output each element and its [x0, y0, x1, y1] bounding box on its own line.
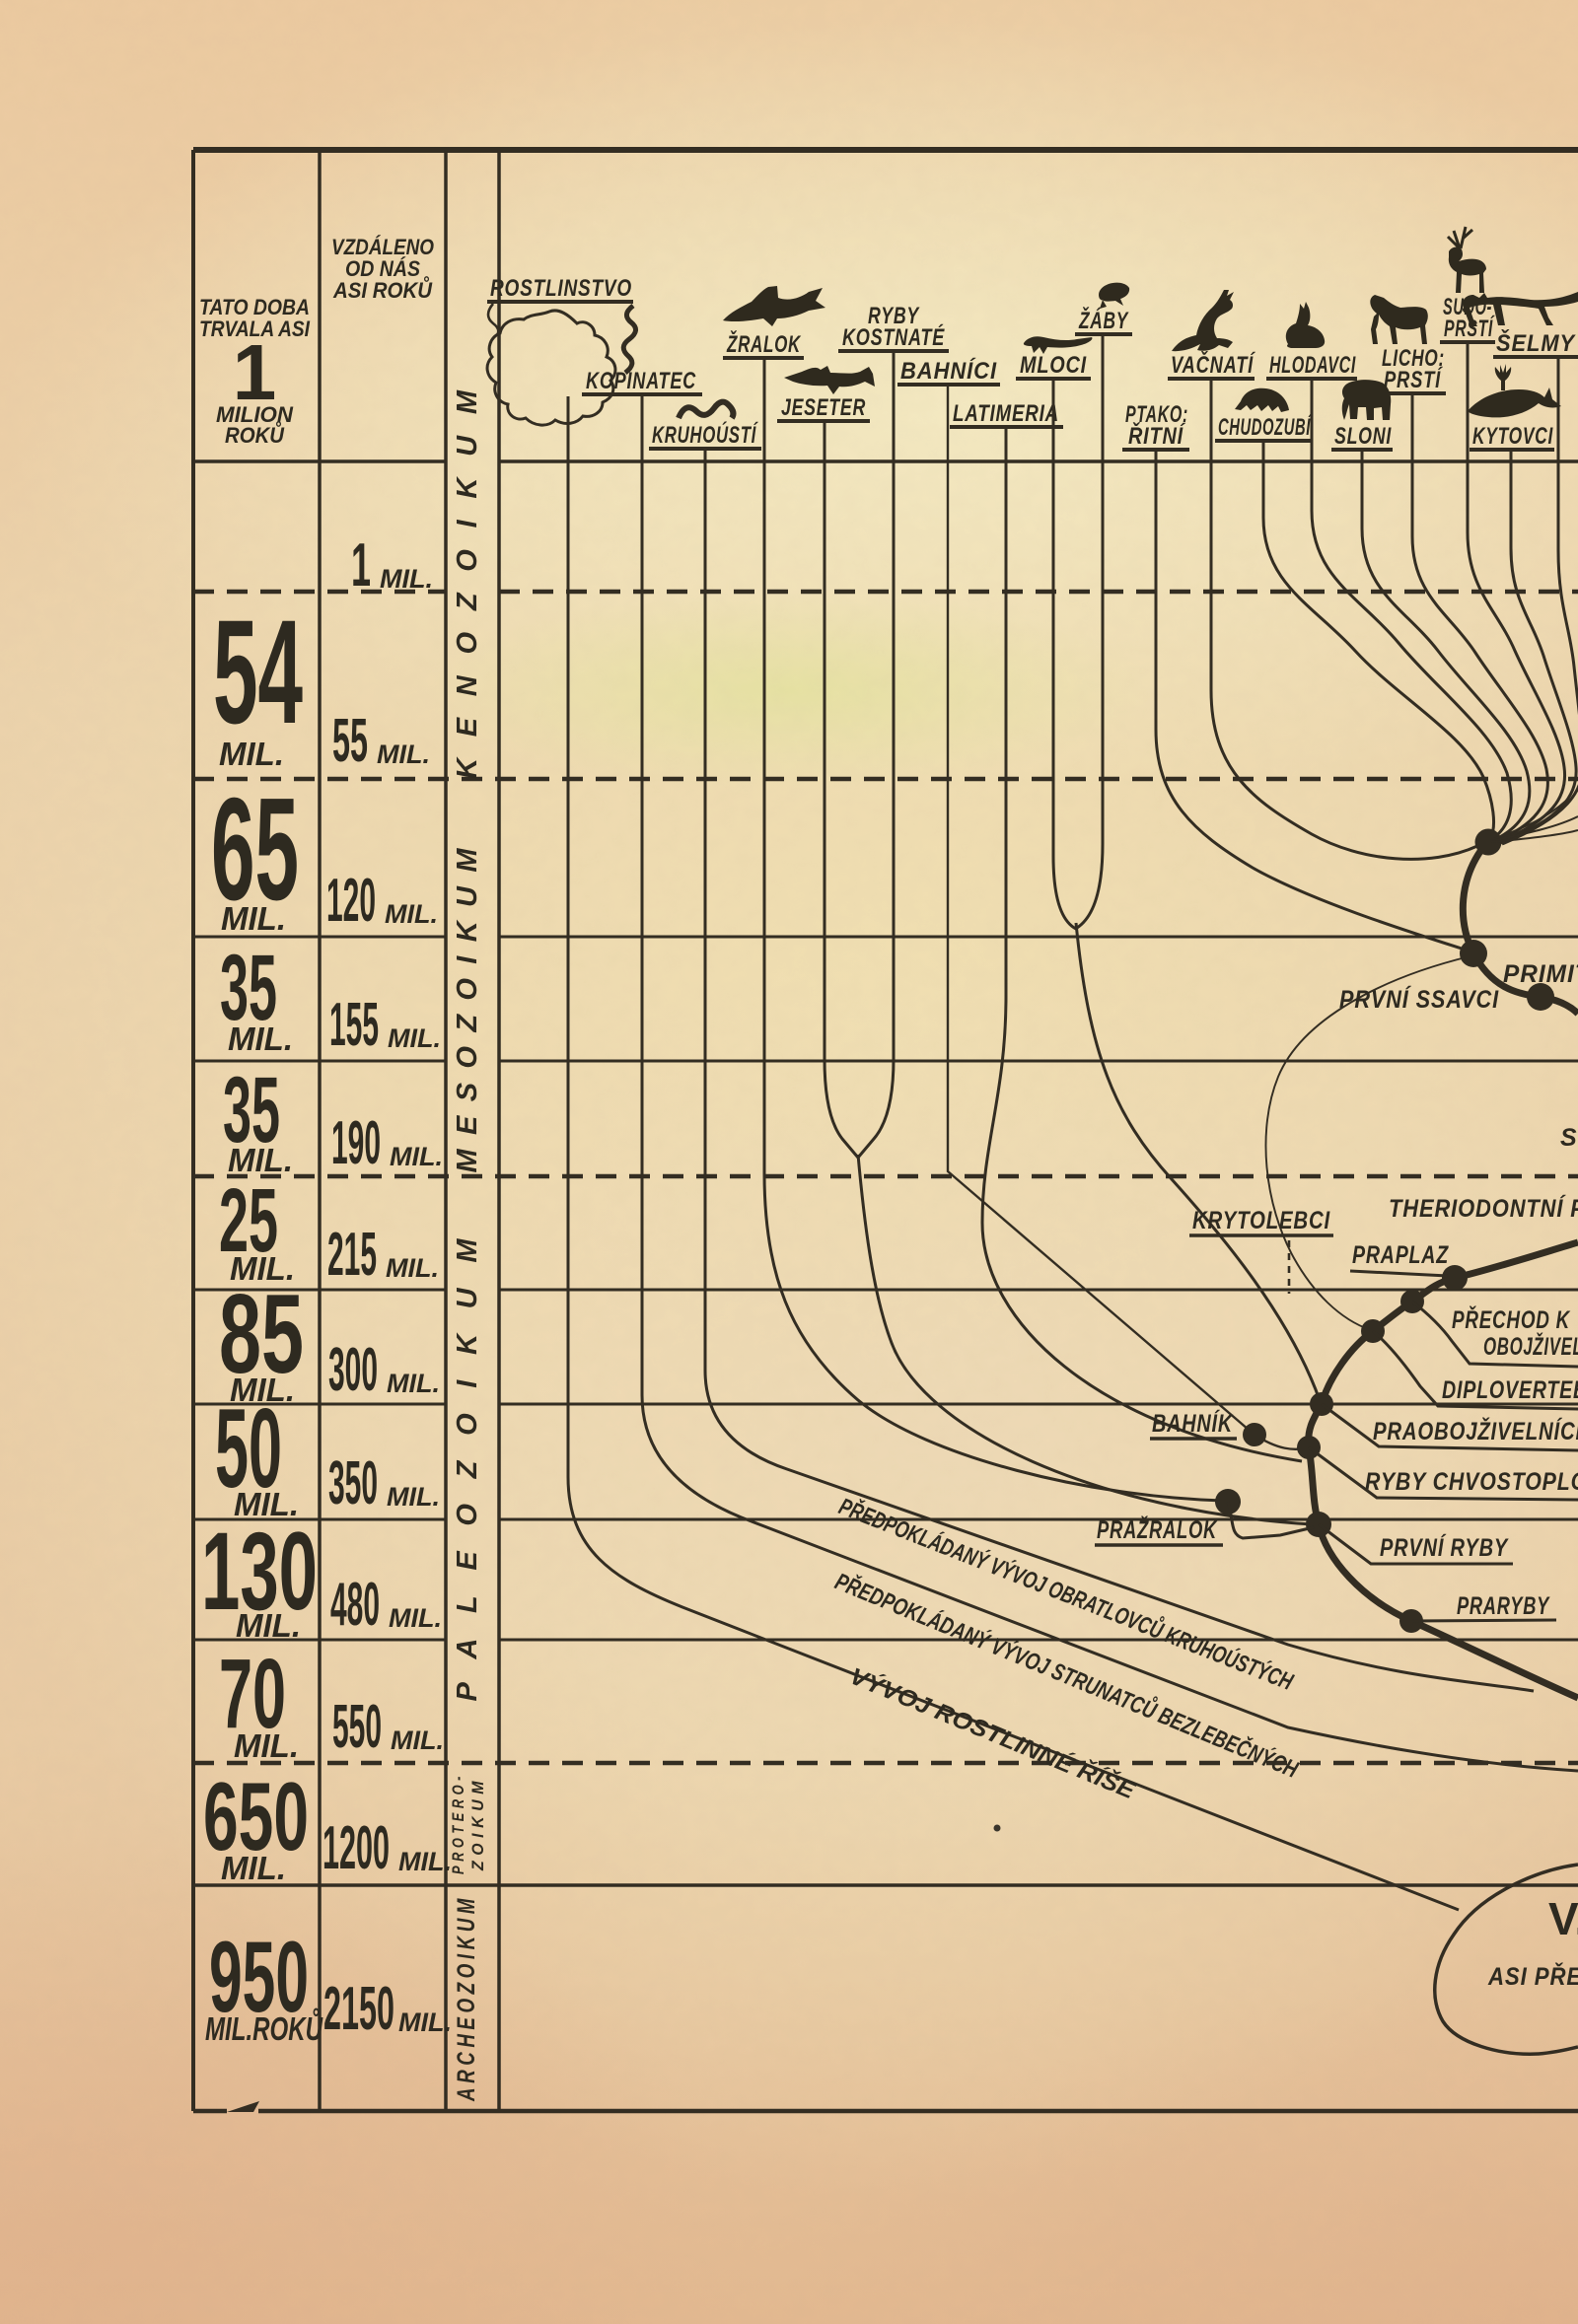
svg-text:CHUDOZUBÍ: CHUDOZUBÍ [1218, 413, 1313, 441]
svg-text:MIL.: MIL. [228, 1021, 293, 1057]
svg-text:VAČNATÍ: VAČNATÍ [1171, 351, 1256, 379]
svg-text:54: 54 [213, 589, 303, 754]
svg-text:155: 155 [329, 991, 379, 1059]
svg-text:PRAOBOJŽIVELNÍCÍ: PRAOBOJŽIVELNÍCÍ [1373, 1416, 1578, 1445]
svg-text:MIL.: MIL. [234, 1727, 299, 1764]
svg-text:MIL.: MIL. [221, 900, 286, 937]
svg-text:ASI PŘED: ASI PŘED [1487, 1961, 1578, 1991]
svg-text:HLODAVCI: HLODAVCI [1269, 352, 1356, 379]
svg-text:300: 300 [328, 1336, 378, 1404]
svg-text:DIPLOVERTEBRON: DIPLOVERTEBRON [1442, 1376, 1578, 1404]
svg-text:KOPINATEC: KOPINATEC [586, 368, 696, 394]
svg-text:PRSTÍ: PRSTÍ [1384, 366, 1444, 393]
svg-text:MIL.: MIL. [380, 564, 433, 594]
svg-text:OBOJŽIVELNÍKŮM: OBOJŽIVELNÍKŮM [1483, 1329, 1578, 1361]
svg-text:KRUHOÚSTÍ: KRUHOÚSTÍ [652, 421, 758, 449]
svg-text:PRAŽRALOK: PRAŽRALOK [1097, 1514, 1218, 1544]
svg-text:PRVNÍ RYBY: PRVNÍ RYBY [1380, 1533, 1509, 1562]
svg-text:350: 350 [328, 1449, 378, 1517]
svg-text:BAHNÍCI: BAHNÍCI [900, 357, 997, 385]
svg-text:S: S [1560, 1124, 1578, 1152]
svg-text:MIL.: MIL. [398, 2007, 452, 2037]
svg-text:ROKŮ: ROKŮ [225, 420, 285, 448]
svg-text:MIL.: MIL. [219, 736, 284, 772]
svg-text:RYBY CHVOSTOPLOUTVÍ: RYBY CHVOSTOPLOUTVÍ [1365, 1467, 1578, 1496]
svg-text:ZOIKUM: ZOIKUM [468, 1776, 487, 1871]
svg-text:480: 480 [330, 1571, 380, 1639]
svg-text:ARCHEOZOIKUM: ARCHEOZOIKUM [453, 1894, 480, 2102]
svg-text:550: 550 [332, 1693, 382, 1761]
svg-text:MIL.: MIL. [391, 1725, 444, 1755]
svg-text:190: 190 [331, 1109, 381, 1177]
svg-text:MIL.: MIL. [388, 1023, 441, 1053]
svg-text:KRYTOLEBCI: KRYTOLEBCI [1192, 1207, 1330, 1234]
svg-text:MIL.: MIL. [390, 1142, 443, 1171]
svg-text:ŠELMY: ŠELMY [1496, 329, 1576, 357]
svg-text:MIL.: MIL. [387, 1369, 440, 1398]
svg-text:ŘITNÍ: ŘITNÍ [1128, 422, 1186, 450]
svg-text:MIL.: MIL. [389, 1603, 442, 1633]
svg-text:MIL.: MIL. [385, 899, 438, 929]
svg-text:PRVNÍ SSAVCI: PRVNÍ SSAVCI [1339, 985, 1499, 1014]
svg-text:MLOCI: MLOCI [1020, 352, 1087, 379]
svg-text:MIL.: MIL. [398, 1847, 452, 1876]
svg-text:1200: 1200 [323, 1814, 390, 1882]
svg-text:V.: V. [1548, 1893, 1578, 1944]
svg-text:BAHNÍK: BAHNÍK [1152, 1409, 1234, 1438]
svg-text:2150: 2150 [323, 1975, 394, 2043]
svg-text:KYTOVCI: KYTOVCI [1472, 423, 1553, 450]
svg-text:ROSTLINSTVO: ROSTLINSTVO [490, 275, 632, 302]
svg-text:PRARYBY: PRARYBY [1457, 1592, 1550, 1620]
svg-text:ŽÁBY: ŽÁBY [1078, 307, 1128, 334]
svg-text:PŘECHOD K: PŘECHOD K [1452, 1304, 1571, 1334]
svg-text:KOSTNATÉ: KOSTNATÉ [842, 323, 945, 351]
svg-text:THERIODONTNÍ PLAZI: THERIODONTNÍ PLAZI [1389, 1194, 1578, 1223]
svg-text:MIL.ROKŮ: MIL.ROKŮ [205, 2007, 323, 2047]
svg-text:PRAPLAZ: PRAPLAZ [1352, 1241, 1450, 1269]
svg-text:JESETER: JESETER [781, 394, 866, 421]
svg-text:MIL.: MIL. [387, 1482, 440, 1512]
svg-text:ASI ROKŮ: ASI ROKŮ [332, 275, 433, 303]
svg-text:55: 55 [332, 707, 368, 775]
svg-text:LATIMERIA: LATIMERIA [953, 400, 1059, 427]
svg-text:SLONI: SLONI [1334, 423, 1392, 450]
svg-text:1: 1 [351, 531, 371, 599]
svg-text:MIL.: MIL. [377, 739, 430, 769]
svg-text:215: 215 [327, 1221, 377, 1289]
svg-text:MIL.: MIL. [386, 1253, 439, 1283]
svg-text:MIL.: MIL. [221, 1850, 286, 1886]
svg-text:120: 120 [326, 867, 376, 935]
svg-text:PRIMITIVNÍ: PRIMITIVNÍ [1503, 959, 1578, 988]
svg-text:ŽRALOK: ŽRALOK [726, 330, 801, 358]
